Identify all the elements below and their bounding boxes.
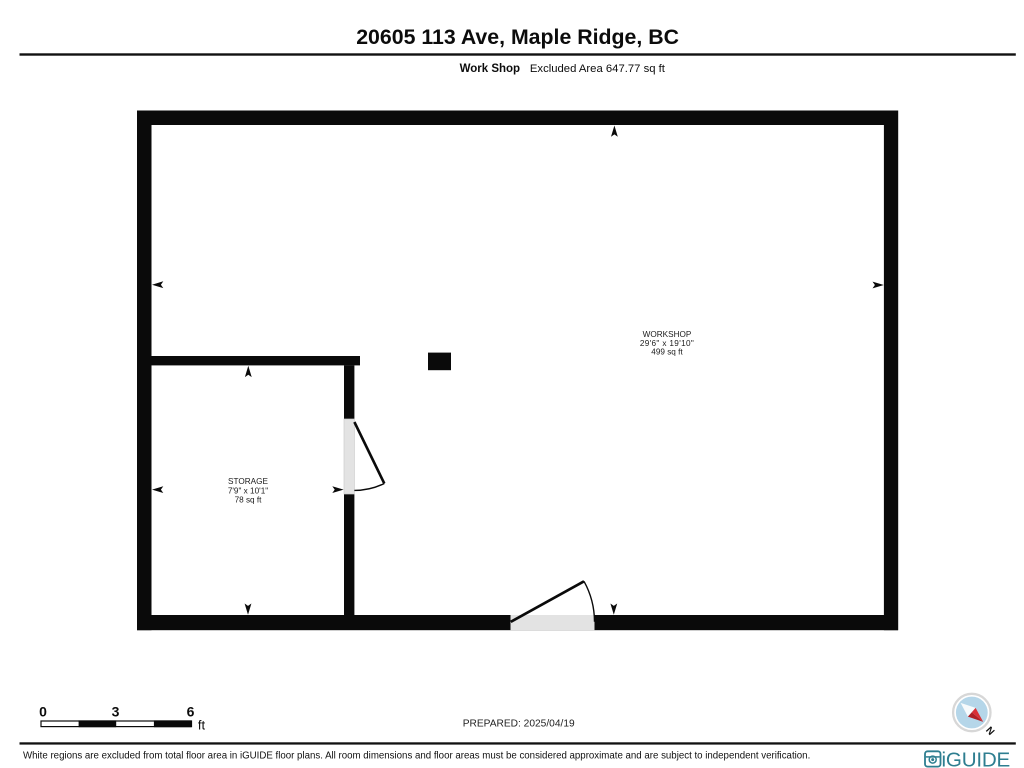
svg-text:WORKSHOP: WORKSHOP bbox=[643, 330, 692, 339]
svg-text:iGUIDE: iGUIDE bbox=[942, 748, 1011, 768]
svg-text:499 sq ft: 499 sq ft bbox=[651, 347, 683, 356]
svg-text:PREPARED: 2025/04/19: PREPARED: 2025/04/19 bbox=[463, 719, 575, 730]
svg-text:Excluded Area 647.77 sq ft: Excluded Area 647.77 sq ft bbox=[530, 63, 666, 75]
svg-text:20605 113 Ave, Maple Ridge, BC: 20605 113 Ave, Maple Ridge, BC bbox=[356, 25, 679, 49]
svg-text:ft: ft bbox=[198, 717, 206, 732]
svg-text:6: 6 bbox=[187, 703, 195, 719]
svg-text:STORAGE: STORAGE bbox=[228, 477, 268, 486]
svg-text:78 sq ft: 78 sq ft bbox=[235, 496, 263, 505]
svg-text:7'9" x 10'1": 7'9" x 10'1" bbox=[228, 487, 268, 496]
svg-text:0: 0 bbox=[39, 703, 47, 719]
svg-text:Work Shop: Work Shop bbox=[460, 63, 520, 75]
svg-text:White regions are excluded fro: White regions are excluded from total fl… bbox=[23, 750, 810, 761]
svg-text:3: 3 bbox=[112, 703, 120, 719]
